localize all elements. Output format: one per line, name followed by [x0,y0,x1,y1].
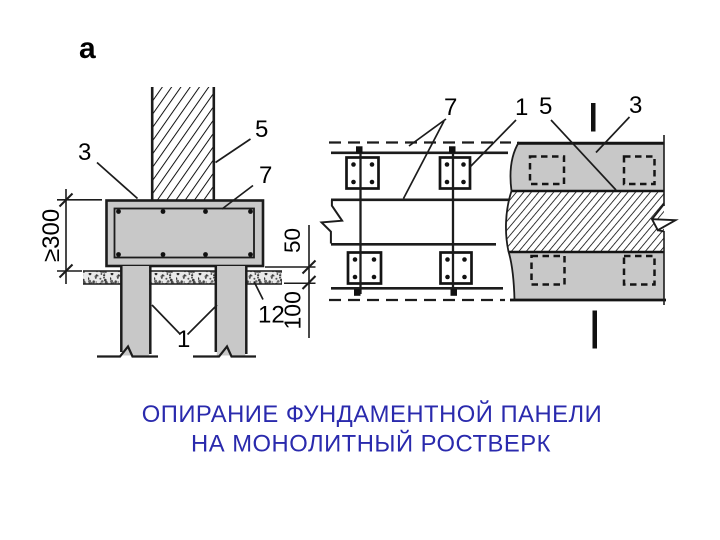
svg-text:5: 5 [255,116,268,143]
svg-text:7: 7 [444,94,457,121]
svg-text:НА МОНОЛИТНЫЙ РОСТВЕРК: НА МОНОЛИТНЫЙ РОСТВЕРК [191,430,551,458]
svg-text:a: a [79,32,96,65]
svg-text:5: 5 [539,93,552,120]
svg-text:7: 7 [259,162,272,189]
svg-text:12: 12 [258,302,285,329]
svg-text:3: 3 [78,139,91,166]
svg-text:ОПИРАНИЕ ФУНДАМЕНТНОЙ ПАНЕЛИ: ОПИРАНИЕ ФУНДАМЕНТНОЙ ПАНЕЛИ [142,400,603,428]
svg-text:1: 1 [515,94,528,121]
svg-text:50: 50 [280,228,305,253]
svg-text:≥300: ≥300 [38,209,65,262]
svg-text:1: 1 [177,326,190,353]
svg-text:3: 3 [629,92,642,119]
